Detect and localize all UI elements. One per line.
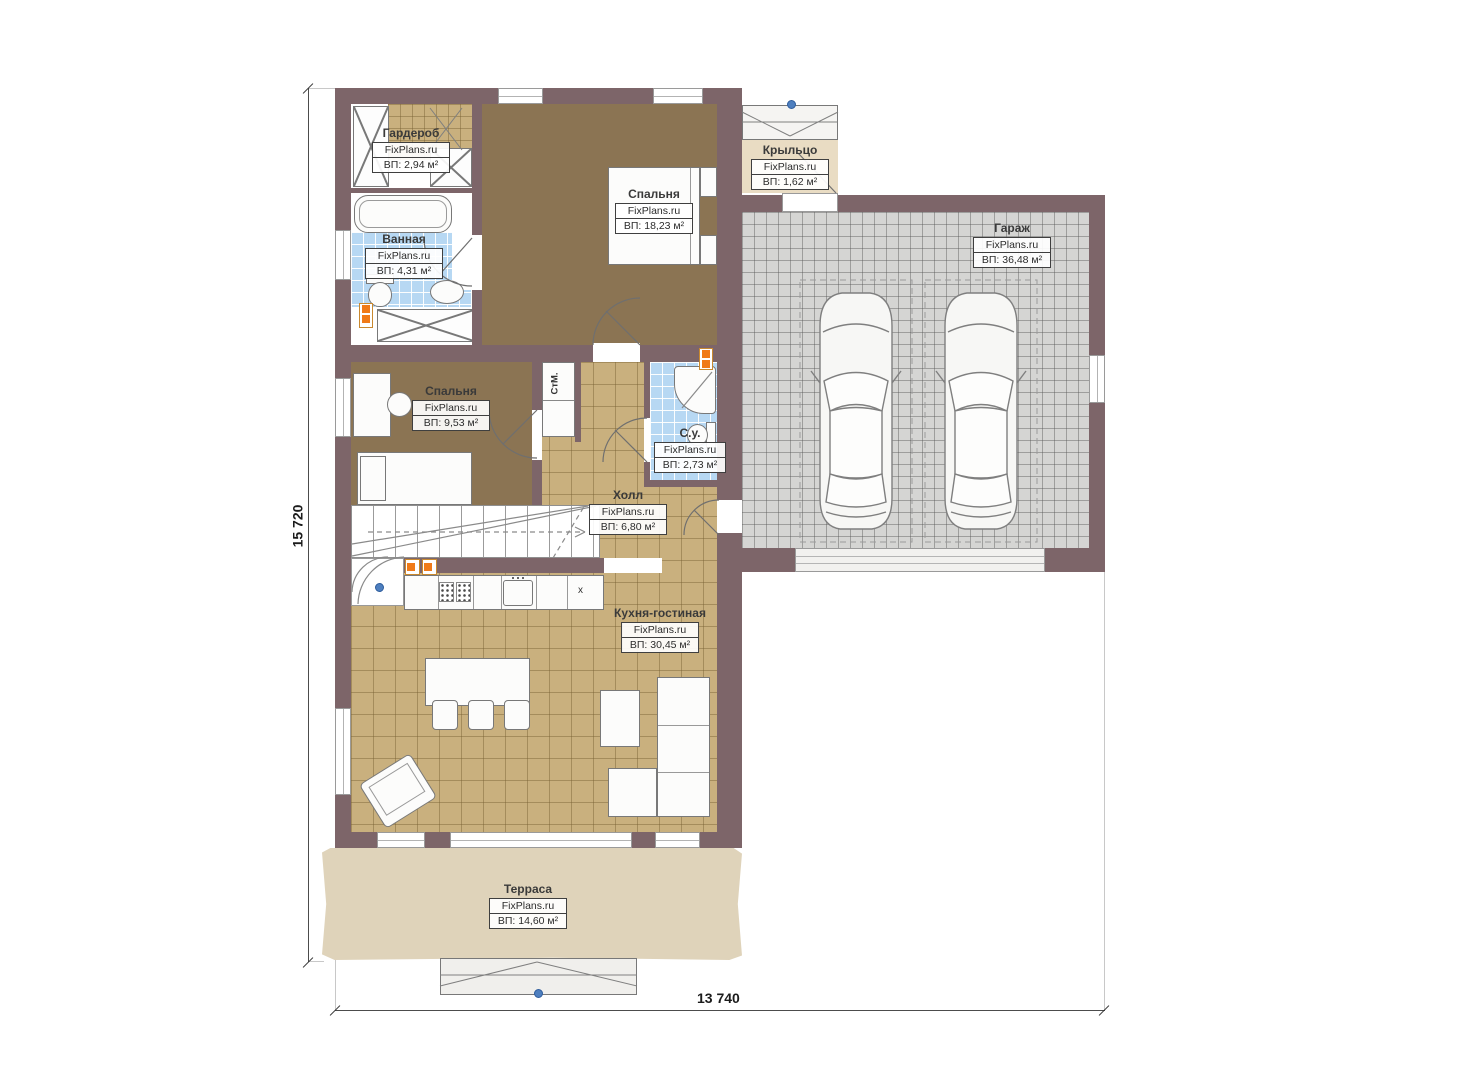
window [655, 832, 700, 848]
room-area: ВП: 18,23 м² [616, 219, 692, 233]
desk [353, 373, 391, 437]
stool [504, 700, 530, 730]
room-label-terrace: Терраса FixPlans.ru ВП: 14,60 м² [489, 882, 567, 929]
room-area: ВП: 14,60 м² [490, 914, 566, 928]
survey-point [375, 583, 384, 592]
room-area: ВП: 36,48 м² [974, 253, 1050, 267]
floor-plan: СтМ. x [0, 0, 1474, 1080]
room-label-bedroom-2: Спальня FixPlans.ru ВП: 9,53 м² [412, 384, 490, 431]
room-label-garage: Гараж FixPlans.ru ВП: 36,48 м² [973, 221, 1051, 268]
window [653, 88, 703, 104]
room-area: ВП: 30,45 м² [622, 638, 698, 652]
window [498, 88, 543, 104]
counter-marker: x [578, 585, 583, 596]
window [377, 832, 425, 848]
room-name: Спальня [615, 187, 693, 201]
room-label-wc: С.у. FixPlans.ru ВП: 2,73 м² [654, 426, 726, 473]
entrance-door-opening [782, 193, 838, 212]
room-label-bedroom-1: Спальня FixPlans.ru ВП: 18,23 м² [615, 187, 693, 234]
stair-landing [351, 558, 404, 606]
radiator-kitchen [422, 559, 437, 575]
stool [432, 700, 458, 730]
extension-line [335, 960, 336, 1010]
kitchen-sink [503, 580, 533, 606]
porch-steps [742, 105, 838, 140]
bathroom-sink [430, 280, 464, 304]
wall-bath-bedroom [472, 104, 482, 345]
stool [468, 700, 494, 730]
radiator-bathroom [359, 303, 373, 328]
watermark: FixPlans.ru [413, 401, 489, 416]
bedroom1-door-opening [593, 343, 640, 362]
extension-line [308, 961, 324, 962]
room-label-kitchen-living: Кухня-гостиная FixPlans.ru ВП: 30,45 м² [614, 606, 706, 653]
washing-machine-label: СтМ. [550, 372, 561, 394]
room-name: Гардероб [372, 126, 450, 140]
watermark: FixPlans.ru [655, 443, 725, 458]
room-area: ВП: 6,80 м² [590, 520, 666, 534]
radiator-wc [699, 348, 713, 370]
room-area: ВП: 9,53 м² [413, 416, 489, 430]
bath-door-opening [472, 235, 482, 290]
watermark: FixPlans.ru [373, 143, 449, 158]
dimension-line-horizontal [335, 1010, 1105, 1011]
watermark: FixPlans.ru [490, 899, 566, 914]
room-name: Холл [589, 488, 667, 502]
watermark: FixPlans.ru [622, 623, 698, 638]
wc-door-opening [644, 418, 650, 462]
extension-line [308, 88, 335, 89]
island-table [425, 658, 530, 706]
radiator-kitchen [405, 559, 420, 575]
room-label-wardrobe: Гардероб FixPlans.ru ВП: 2,94 м² [372, 126, 450, 173]
watermark: FixPlans.ru [752, 160, 828, 175]
hall-garage-door-opening [717, 500, 742, 533]
watermark: FixPlans.ru [590, 505, 666, 520]
dimension-label-height: 15 720 [289, 505, 305, 548]
dimension-label-width: 13 740 [697, 990, 740, 1006]
terrace-glazed-door [450, 832, 632, 848]
wall-closet-hall [575, 362, 581, 442]
room-area: ВП: 2,94 м² [373, 158, 449, 172]
garage-door [795, 548, 1045, 572]
room-name: Терраса [489, 882, 567, 896]
survey-point [534, 989, 543, 998]
hall-cabinet [377, 309, 475, 342]
window [335, 708, 351, 795]
room-name: С.у. [654, 426, 726, 440]
nightstand [700, 235, 717, 265]
room-label-porch: Крыльцо FixPlans.ru ВП: 1,62 м² [751, 143, 829, 190]
room-name: Кухня-гостиная [614, 606, 706, 620]
wall-wc-bottom [644, 480, 717, 487]
dimension-line-vertical [308, 88, 309, 962]
coffee-table [600, 690, 640, 747]
room-name: Ванная [365, 232, 443, 246]
sofa-chaise [657, 677, 710, 817]
nightstand [700, 167, 717, 197]
faucet-icon [512, 577, 514, 579]
room-name: Спальня [412, 384, 490, 398]
room-name: Крыльцо [751, 143, 829, 157]
desk-chair [387, 392, 412, 417]
room-area: ВП: 2,73 м² [655, 458, 725, 472]
window [1089, 355, 1105, 403]
room-area: ВП: 1,62 м² [752, 175, 828, 189]
pillow [360, 456, 386, 501]
bathtub [354, 195, 452, 233]
kitchen-entry-opening [604, 558, 662, 573]
survey-point [787, 100, 796, 109]
sofa-seat [608, 768, 657, 817]
room-name: Гараж [973, 221, 1051, 235]
bedroom2-door-opening [532, 410, 542, 460]
room-label-bathroom: Ванная FixPlans.ru ВП: 4,31 м² [365, 232, 443, 279]
stove-burners [439, 582, 454, 602]
watermark: FixPlans.ru [974, 238, 1050, 253]
room-area: ВП: 4,31 м² [366, 264, 442, 278]
stove-burners [456, 582, 471, 602]
watermark: FixPlans.ru [366, 249, 442, 264]
extension-line [1104, 572, 1105, 1010]
window [335, 378, 351, 437]
stairs [351, 505, 600, 558]
room-label-hall: Холл FixPlans.ru ВП: 6,80 м² [589, 488, 667, 535]
watermark: FixPlans.ru [616, 204, 692, 219]
window [335, 230, 351, 280]
